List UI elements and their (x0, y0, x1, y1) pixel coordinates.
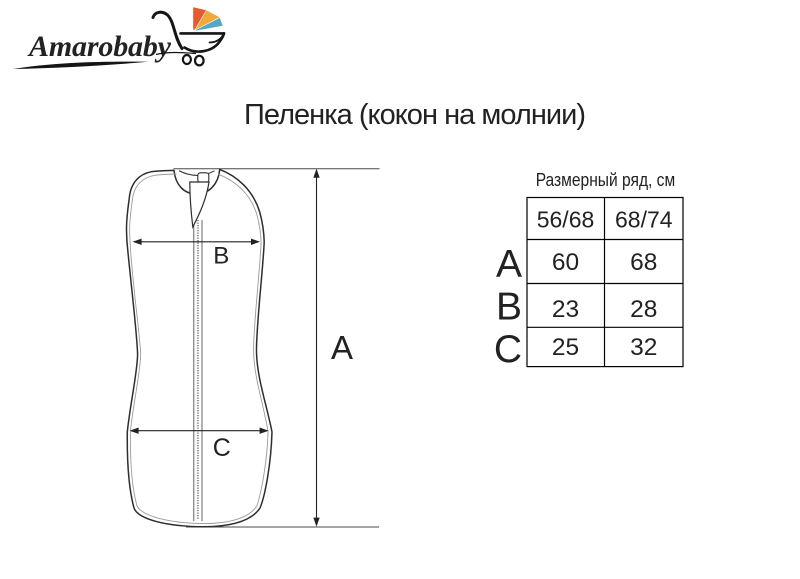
svg-text:A: A (496, 243, 522, 286)
svg-text:C: C (213, 434, 231, 462)
svg-text:B: B (213, 243, 229, 270)
svg-text:28: 28 (630, 296, 657, 323)
svg-text:A: A (331, 329, 353, 366)
svg-text:Пеленка (кокон на молнии): Пеленка (кокон на молнии) (244, 99, 586, 131)
svg-text:25: 25 (552, 334, 579, 361)
svg-text:60: 60 (552, 249, 579, 276)
svg-text:68/74: 68/74 (615, 207, 673, 233)
svg-text:C: C (494, 328, 522, 371)
svg-text:B: B (496, 286, 522, 329)
svg-text:23: 23 (552, 296, 579, 323)
svg-text:32: 32 (630, 334, 657, 361)
svg-text:68: 68 (630, 249, 657, 276)
svg-text:Amarobaby: Amarobaby (27, 30, 172, 63)
svg-text:56/68: 56/68 (537, 207, 595, 233)
svg-text:Размерный ряд, см: Размерный ряд, см (536, 170, 676, 190)
